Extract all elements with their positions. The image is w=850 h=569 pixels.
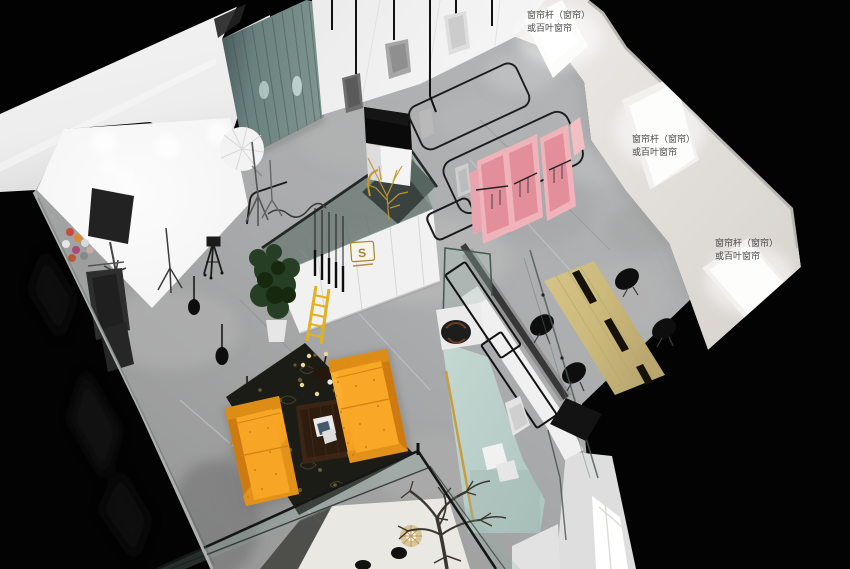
svg-text:S: S (358, 246, 367, 261)
